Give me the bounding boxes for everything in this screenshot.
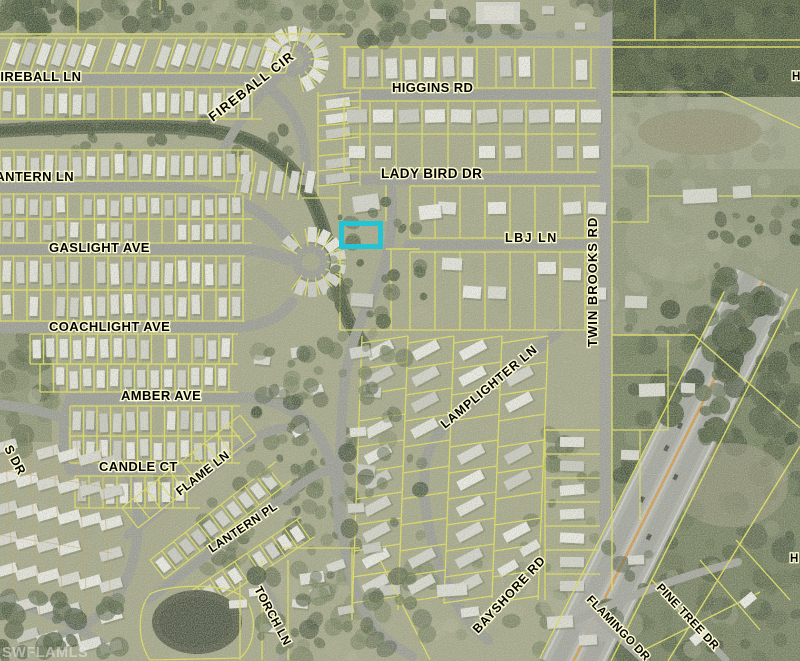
svg-text:GASLIGHT AVE: GASLIGHT AVE [49, 240, 150, 255]
svg-text:AMBER AVE: AMBER AVE [121, 388, 201, 403]
svg-text:COACHLIGHT AVE: COACHLIGHT AVE [49, 319, 170, 334]
svg-text:H: H [792, 71, 800, 83]
svg-text:H: H [790, 553, 799, 565]
svg-text:TWIN BROOKS RD: TWIN BROOKS RD [585, 217, 600, 347]
svg-text:CANDLE CT: CANDLE CT [99, 459, 178, 474]
svg-text:HIGGINS RD: HIGGINS RD [392, 80, 473, 95]
svg-text:SWFLAMLS: SWFLAMLS [2, 645, 88, 661]
svg-text:FIREBALL LN: FIREBALL LN [0, 69, 81, 84]
svg-text:LBJ LN: LBJ LN [505, 231, 558, 245]
svg-text:LADY BIRD DR: LADY BIRD DR [381, 166, 482, 181]
svg-text:LANTERN LN: LANTERN LN [0, 169, 74, 184]
